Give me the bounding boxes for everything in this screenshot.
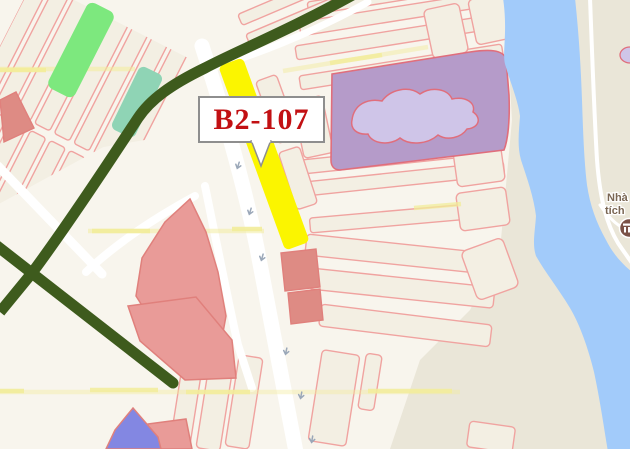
parcel-callout-label: B2-107 xyxy=(214,103,310,137)
callout-pointer xyxy=(250,140,274,169)
poi-label-line2: tích xyxy=(605,205,625,217)
parcel xyxy=(456,187,511,232)
map-canvas[interactable]: Nhà tích xyxy=(0,0,630,449)
map-screenshot: { "window": {"width": 630, "height": 449… xyxy=(0,0,630,449)
poi-label-line1: Nhà xyxy=(607,192,629,204)
red-parcel xyxy=(281,249,320,291)
map-render: Nhà tích xyxy=(0,0,630,449)
red-parcel xyxy=(288,289,323,324)
parcel-callout[interactable]: B2-107 xyxy=(198,96,325,143)
